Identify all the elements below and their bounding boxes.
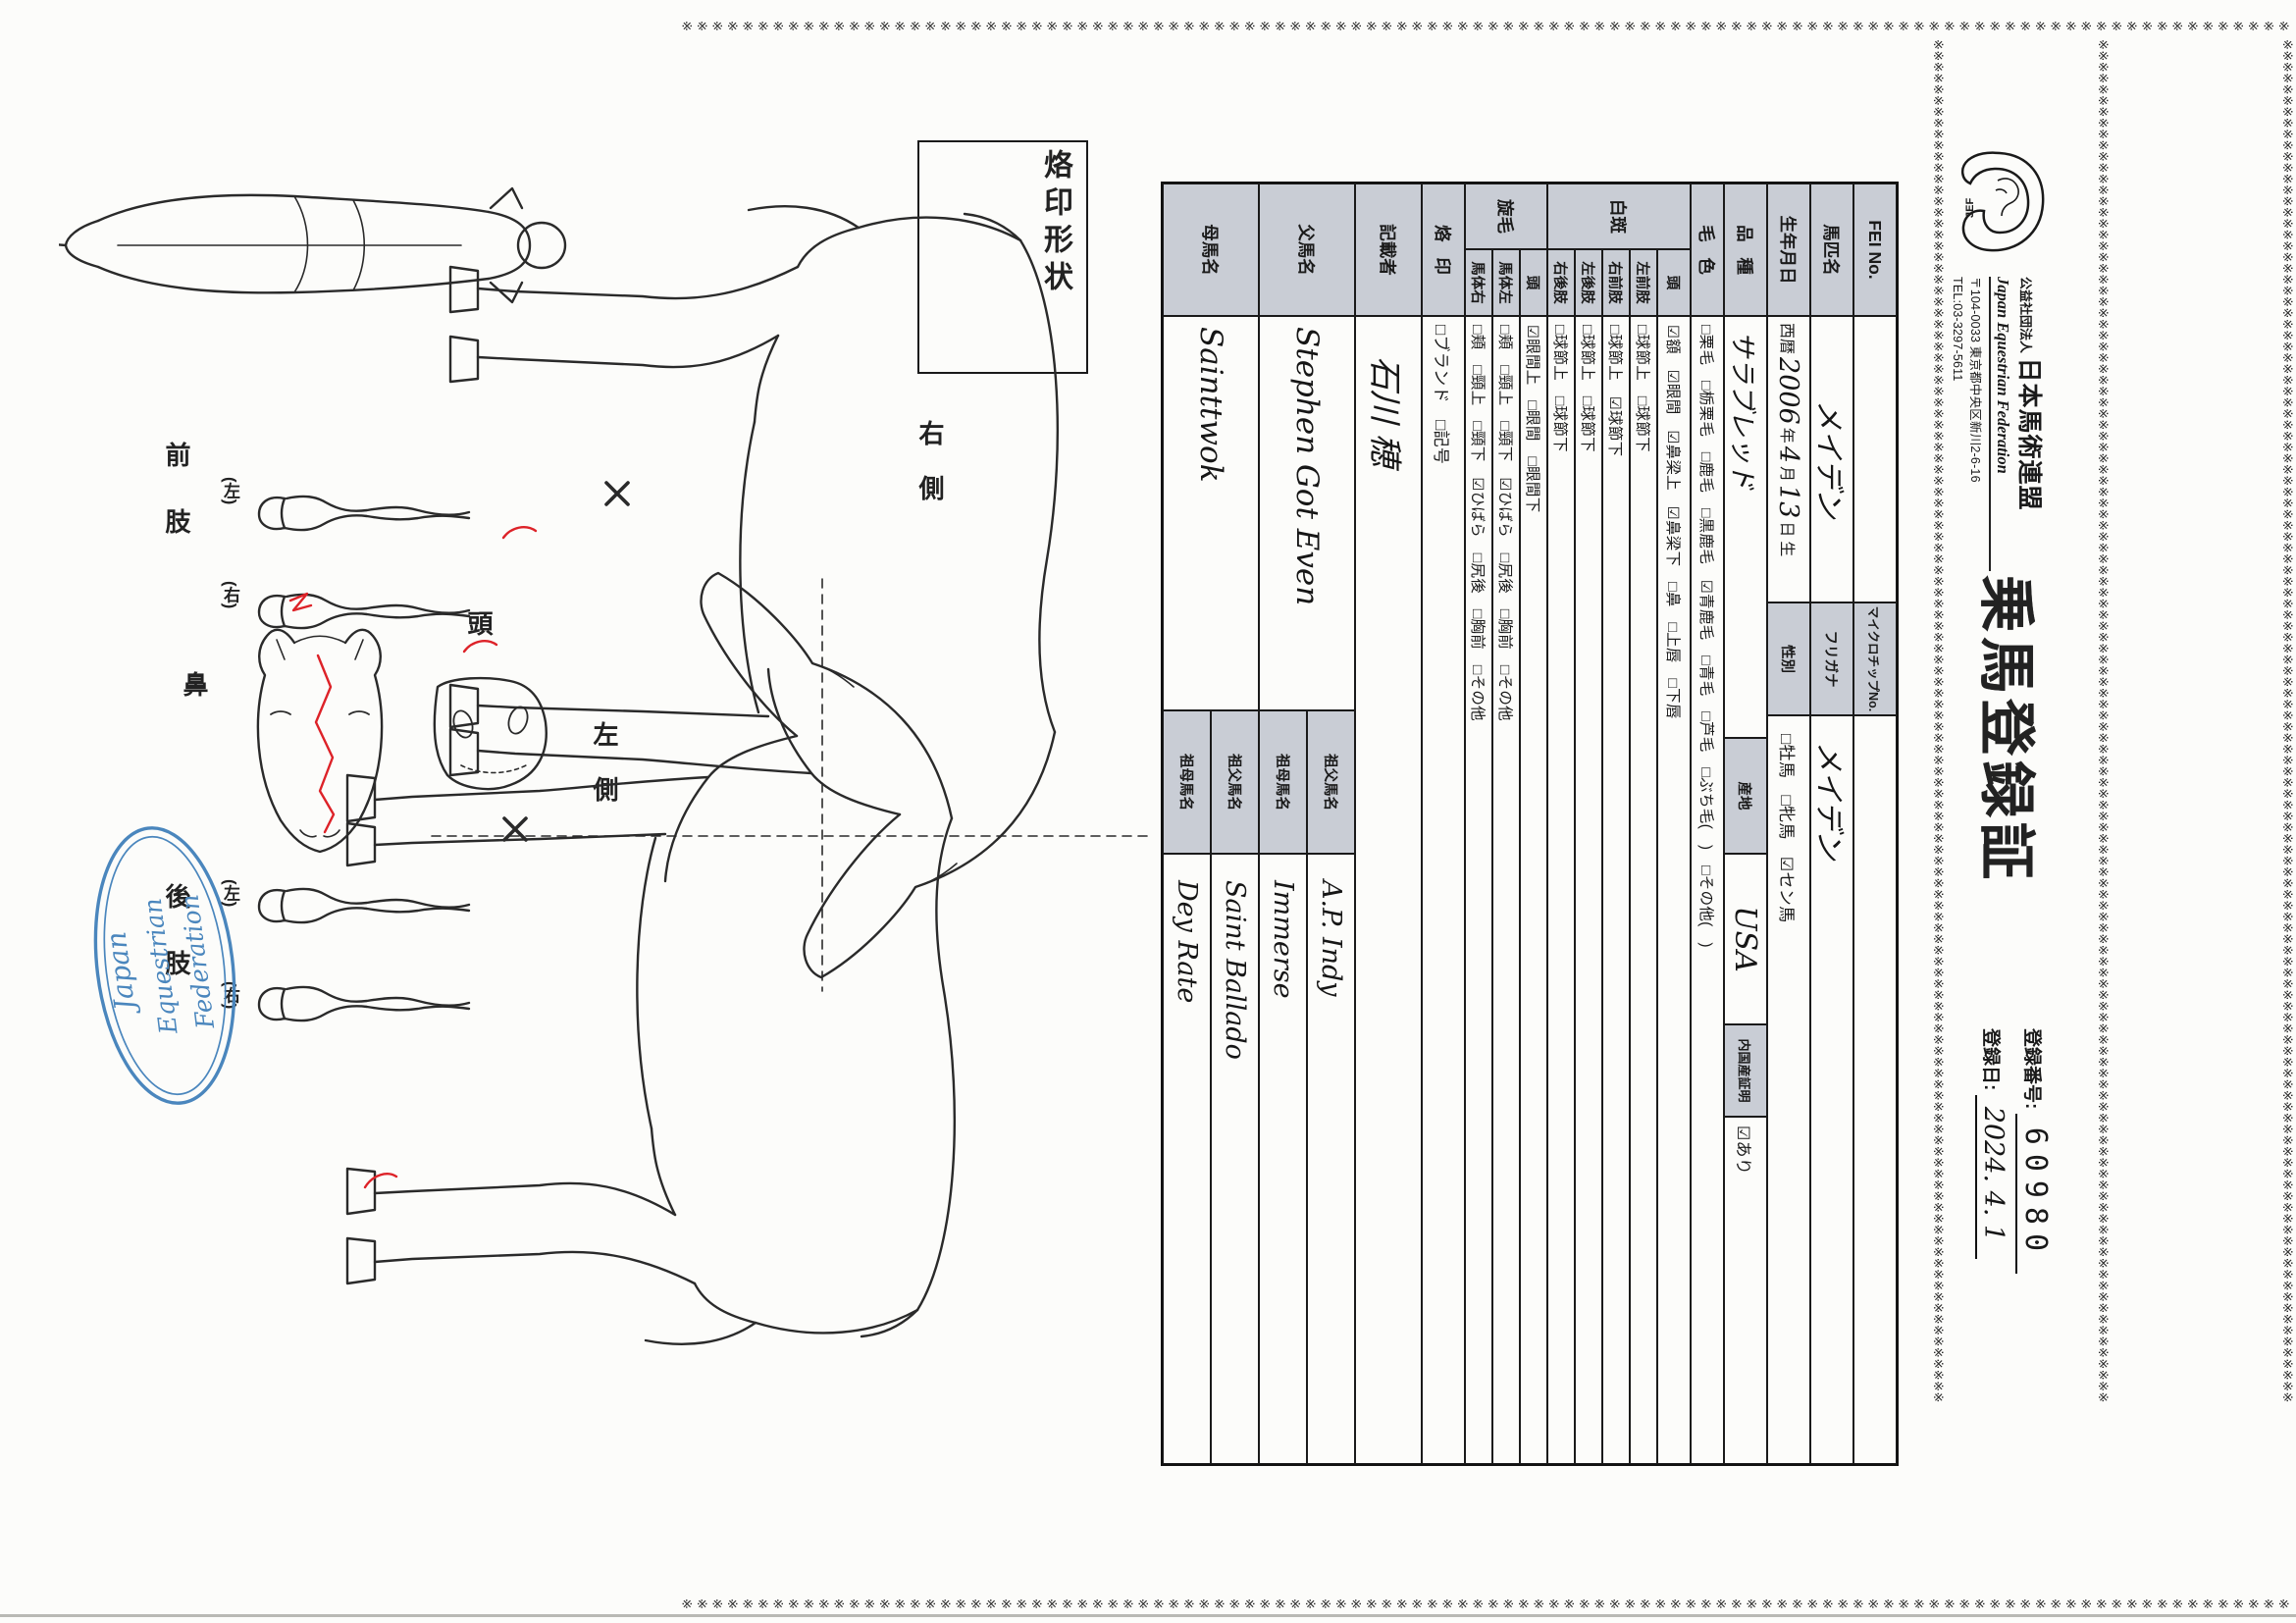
red-pastern-mark-1 <box>503 527 536 538</box>
x-mark-right-side <box>606 483 628 504</box>
horse-diagrams <box>59 93 1177 1398</box>
stamp-line3: Federation <box>175 893 220 1031</box>
hind-leg-right-diagram <box>259 987 469 1021</box>
scanned-registration-certificate: ※※※※※※※※※※※※※※※※※※※※※※※※※※※※※※※※※※※※※※※※… <box>0 0 2296 1623</box>
scan-edge-line <box>0 1614 2296 1617</box>
federation-stamp: Japan Equestrian Federation <box>88 820 241 1111</box>
stamp-line1: Japan <box>100 930 142 1018</box>
dorsal-view-horse <box>59 188 565 302</box>
hind-leg-left-diagram <box>259 889 469 922</box>
diagram-section: 烙印形状 右側 左側 前肢 (左) (右) 後肢 (左) (右) 頭 鼻 <box>0 0 2296 1623</box>
red-pastern-mark-3 <box>365 1174 396 1187</box>
red-blaze-mark <box>316 655 334 832</box>
red-markings <box>290 527 536 1187</box>
red-pastern-mark-2 <box>464 641 496 652</box>
right-side-horse <box>450 206 1058 977</box>
stamp-line2: Equestrian <box>138 897 183 1036</box>
front-leg-left-diagram <box>259 497 469 530</box>
